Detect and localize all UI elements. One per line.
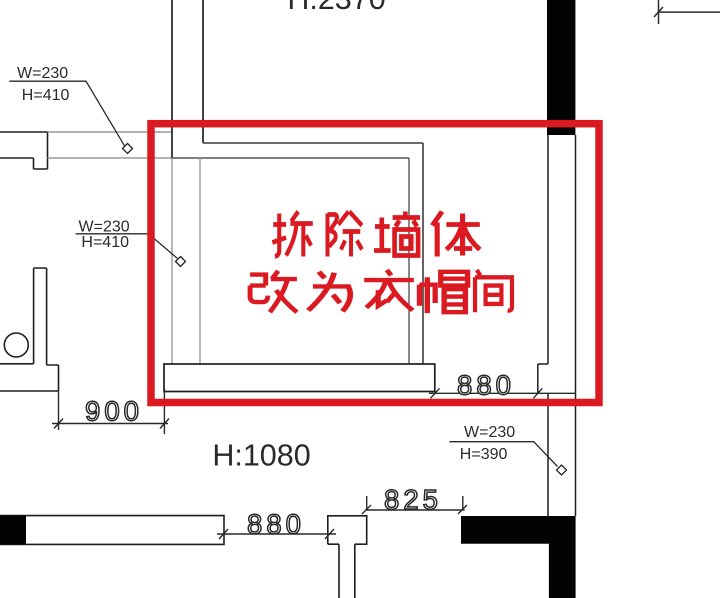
svg-text:W=230: W=230 <box>464 424 515 441</box>
svg-text:W=230: W=230 <box>17 65 68 82</box>
svg-text:H:1080: H:1080 <box>212 439 310 473</box>
svg-text:880: 880 <box>247 509 305 540</box>
svg-text:900: 900 <box>85 396 143 427</box>
svg-text:H:2370: H:2370 <box>287 0 385 16</box>
svg-text:H=410: H=410 <box>81 234 129 251</box>
svg-text:W=230: W=230 <box>79 219 130 236</box>
svg-text:825: 825 <box>384 484 442 515</box>
svg-text:880: 880 <box>457 370 515 401</box>
svg-text:H=390: H=390 <box>460 446 508 463</box>
svg-text:H=410: H=410 <box>22 87 70 104</box>
